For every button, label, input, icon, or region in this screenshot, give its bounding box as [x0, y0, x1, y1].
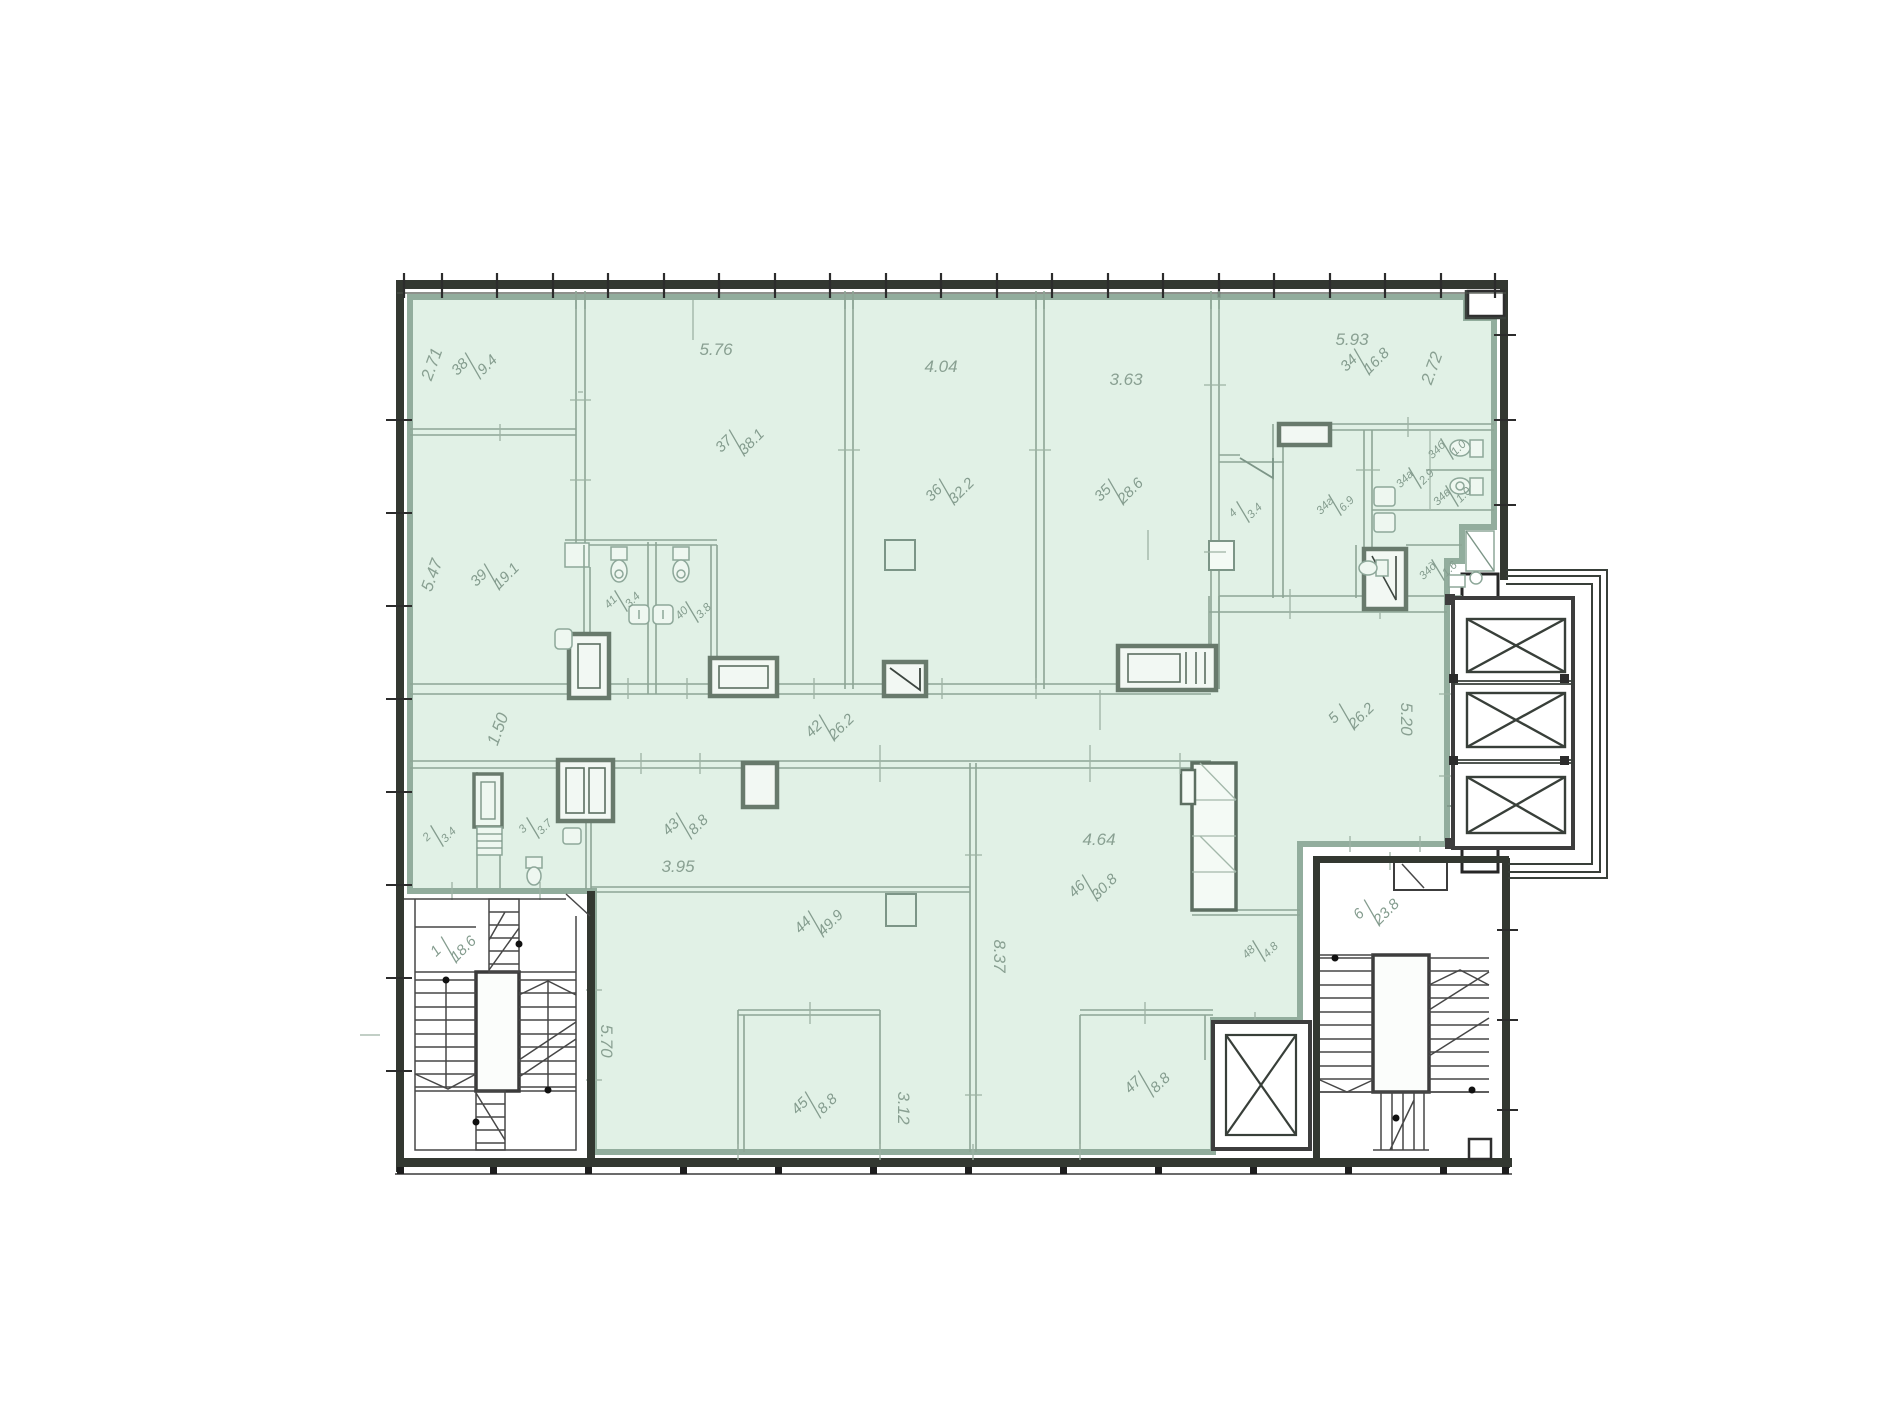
svg-text:5.93: 5.93: [1335, 330, 1369, 349]
svg-text:3.12: 3.12: [894, 1091, 913, 1125]
svg-text:5.20: 5.20: [1397, 702, 1416, 736]
svg-text:4.04: 4.04: [924, 357, 957, 376]
svg-text:3.95: 3.95: [661, 857, 695, 876]
svg-text:8.37: 8.37: [990, 939, 1009, 973]
svg-text:5.70: 5.70: [597, 1024, 616, 1058]
svg-text:3.63: 3.63: [1109, 370, 1143, 389]
svg-text:4.64: 4.64: [1082, 830, 1115, 849]
svg-text:5.76: 5.76: [699, 340, 733, 359]
